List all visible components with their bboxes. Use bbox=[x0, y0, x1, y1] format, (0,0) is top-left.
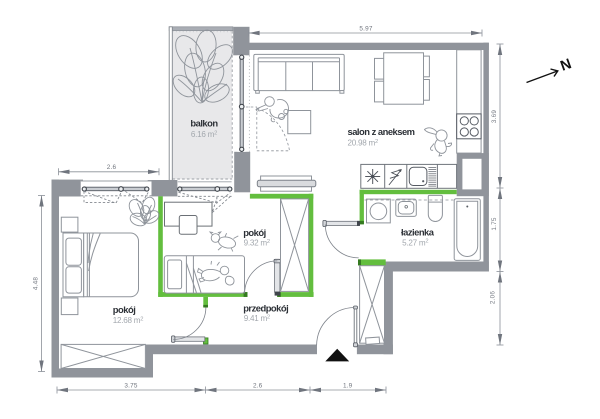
svg-text:1.9: 1.9 bbox=[343, 382, 353, 389]
svg-text:1.75: 1.75 bbox=[491, 217, 498, 230]
svg-text:9.41 m2: 9.41 m2 bbox=[244, 314, 270, 323]
svg-text:balkon: balkon bbox=[190, 118, 218, 129]
svg-text:3.69: 3.69 bbox=[491, 110, 498, 123]
svg-text:3.75: 3.75 bbox=[124, 382, 137, 389]
svg-text:2.6: 2.6 bbox=[107, 164, 117, 171]
svg-text:20.98 m2: 20.98 m2 bbox=[348, 138, 379, 147]
svg-text:przedpokój: przedpokój bbox=[243, 303, 288, 314]
svg-text:2.6: 2.6 bbox=[253, 382, 263, 389]
svg-text:5.27 m2: 5.27 m2 bbox=[402, 238, 428, 247]
svg-text:pokój: pokój bbox=[243, 227, 266, 238]
svg-text:4.48: 4.48 bbox=[33, 277, 40, 290]
svg-text:9.32 m2: 9.32 m2 bbox=[244, 239, 270, 248]
svg-text:6.16 m2: 6.16 m2 bbox=[191, 130, 217, 139]
svg-text:12.68 m2: 12.68 m2 bbox=[113, 316, 144, 325]
svg-text:łazienka: łazienka bbox=[401, 227, 435, 238]
svg-text:pokój: pokój bbox=[113, 304, 136, 315]
svg-text:2.06: 2.06 bbox=[490, 291, 497, 304]
svg-text:5.97: 5.97 bbox=[359, 26, 372, 33]
svg-text:salon z aneksem: salon z aneksem bbox=[348, 126, 415, 137]
